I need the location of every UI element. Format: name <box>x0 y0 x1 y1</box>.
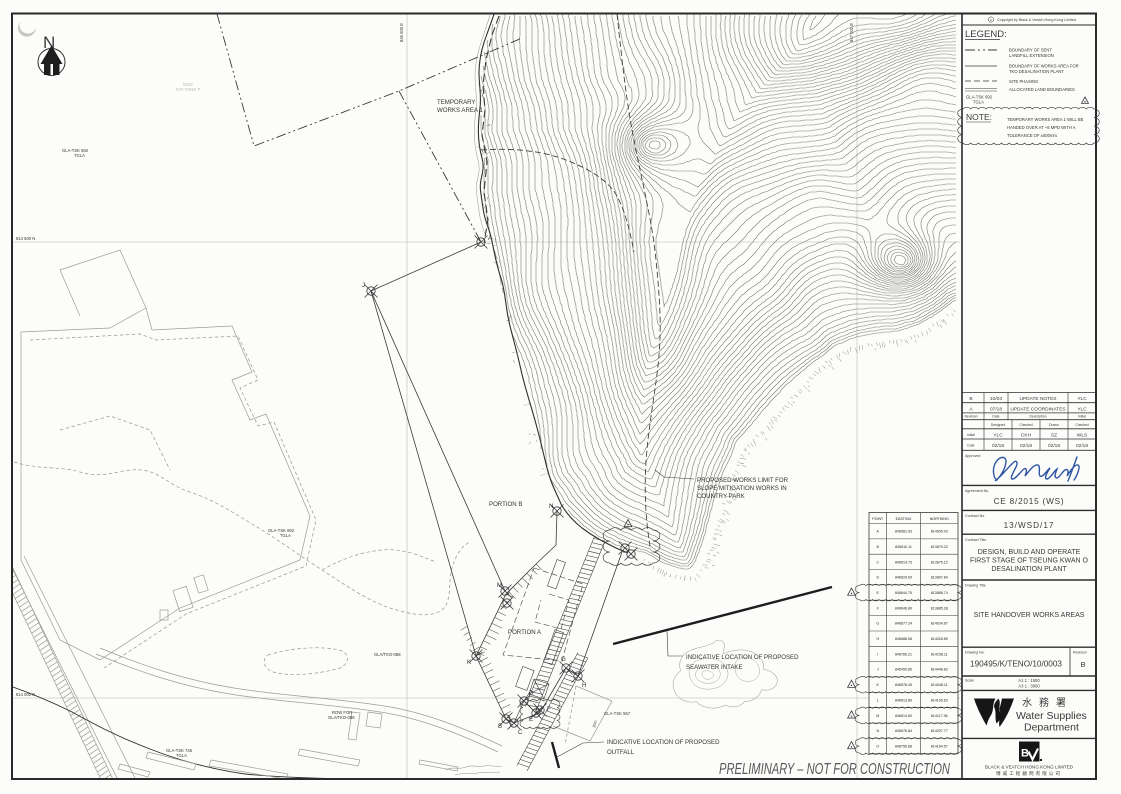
svg-text:02/18: 02/18 <box>1020 443 1032 449</box>
svg-text:J: J <box>362 282 365 289</box>
svg-text:846614.73: 846614.73 <box>895 560 912 564</box>
svg-text:O: O <box>876 745 879 749</box>
svg-text:PORTION A: PORTION A <box>508 629 542 636</box>
svg-text:B: B <box>969 396 972 402</box>
svg-text:CE 8/2015 (WS): CE 8/2015 (WS) <box>994 497 1065 506</box>
svg-text:846614.60: 846614.60 <box>895 714 912 718</box>
svg-text:SLOPE MITIGATION WORKS IN: SLOPE MITIGATION WORKS IN <box>697 485 787 492</box>
svg-text:TOLERANCE OF ±500mm.: TOLERANCE OF ±500mm. <box>1007 133 1058 138</box>
svg-text:F: F <box>547 706 551 713</box>
svg-text:M: M <box>497 582 502 589</box>
svg-text:814164.57: 814164.57 <box>931 745 948 749</box>
svg-text:813885.28: 813885.28 <box>931 606 948 610</box>
svg-text:SZ: SZ <box>1051 432 1057 438</box>
svg-text:TGLA: TGLA <box>74 153 85 158</box>
svg-text:Drawn: Drawn <box>1049 423 1059 427</box>
svg-text:Drawing Title: Drawing Title <box>965 584 986 588</box>
svg-text:H: H <box>582 682 586 689</box>
svg-text:814117.96: 814117.96 <box>931 714 948 718</box>
svg-text:ALLOCATED LAND BOUNDARIES: ALLOCATED LAND BOUNDARIES <box>1009 87 1075 92</box>
svg-text:LEGEND:: LEGEND: <box>965 29 1007 40</box>
svg-text:Initial: Initial <box>1078 415 1086 419</box>
svg-text:NOTE:: NOTE: <box>966 112 992 122</box>
svg-text:02/18: 02/18 <box>1076 443 1088 449</box>
svg-text:BOUNDARY OF WORKS AREA FOR: BOUNDARY OF WORKS AREA FOR <box>1009 64 1079 69</box>
svg-text:GLA/TKO-088: GLA/TKO-088 <box>328 715 355 720</box>
svg-text:TGLA: TGLA <box>280 533 291 538</box>
svg-text:TEMPORARY WORKS AREA 1 WILL BE: TEMPORARY WORKS AREA 1 WILL BE <box>1007 117 1084 122</box>
svg-text:TGLA: TGLA <box>176 753 187 758</box>
svg-text:CKH: CKH <box>1021 432 1032 438</box>
svg-text:846450.85: 846450.85 <box>895 668 912 672</box>
svg-text:Contract Title: Contract Title <box>965 538 986 542</box>
svg-text:813897.84: 813897.84 <box>931 576 948 580</box>
svg-text:PRELIMINARY – NOT FOR CONSTRUC: PRELIMINARY – NOT FOR CONSTRUCTION <box>719 761 951 778</box>
svg-text:846581.93: 846581.93 <box>895 530 912 534</box>
svg-text:PORTION B: PORTION B <box>489 501 522 508</box>
svg-text:814034.67: 814034.67 <box>931 622 948 626</box>
svg-text:水務署: 水務署 <box>1022 696 1073 709</box>
svg-text:OUTFALL: OUTFALL <box>607 749 635 756</box>
svg-text:814207.77: 814207.77 <box>931 729 948 733</box>
svg-text:Checked: Checked <box>1075 423 1088 427</box>
svg-text:E: E <box>529 716 533 723</box>
svg-text:BOUNDARY OF SENT: BOUNDARY OF SENT <box>1009 48 1052 53</box>
svg-text:846610.11: 846610.11 <box>895 545 912 549</box>
svg-text:B: B <box>1080 660 1085 669</box>
svg-text:G: G <box>876 622 879 626</box>
svg-text:HANDED OVER AT +6 MPD WITH A: HANDED OVER AT +6 MPD WITH A <box>1007 125 1076 130</box>
svg-text:G: G <box>561 656 566 663</box>
svg-text:Drawing No.: Drawing No. <box>965 651 985 655</box>
svg-text:846644.75: 846644.75 <box>895 591 912 595</box>
svg-text:Department: Department <box>1024 722 1079 734</box>
svg-text:Date: Date <box>992 415 999 419</box>
svg-text:Designed: Designed <box>991 423 1005 427</box>
svg-text:C: C <box>876 560 879 564</box>
svg-text:N: N <box>876 729 879 733</box>
svg-text:846688.58: 846688.58 <box>895 637 912 641</box>
svg-text:FIRST STAGE OF TSEUNG KWAN O: FIRST STAGE OF TSEUNG KWAN O <box>970 558 1089 565</box>
svg-text:C: C <box>518 729 523 736</box>
svg-text:L: L <box>877 698 879 702</box>
svg-text:PROPOSED WORKS LIMIT FOR: PROPOSED WORKS LIMIT FOR <box>697 477 789 484</box>
svg-text:GLA/TKO-088: GLA/TKO-088 <box>374 652 401 657</box>
svg-text:02/18: 02/18 <box>1048 443 1060 449</box>
svg-text:YLC: YLC <box>1077 406 1087 412</box>
svg-text:GLA-TSK 567: GLA-TSK 567 <box>604 711 631 716</box>
svg-text:02/18: 02/18 <box>992 443 1004 449</box>
svg-text:COUNTRY PARK: COUNTRY PARK <box>697 493 745 500</box>
svg-text:814105.63: 814105.63 <box>931 698 948 702</box>
svg-text:A1 1 : 1500: A1 1 : 1500 <box>1018 678 1040 683</box>
svg-text:10/03: 10/03 <box>990 396 1002 402</box>
svg-text:SEAWATER INTAKE: SEAWATER INTAKE <box>686 664 743 671</box>
svg-text:博威工程顧問有限公司: 博威工程顧問有限公司 <box>996 770 1062 777</box>
svg-text:YLC: YLC <box>1077 396 1087 402</box>
svg-text:13/WSD/17: 13/WSD/17 <box>1004 521 1055 530</box>
svg-text:Water Supplies: Water Supplies <box>1016 710 1087 722</box>
svg-text:814448.83: 814448.83 <box>931 668 948 672</box>
svg-text:EASTING: EASTING <box>896 517 912 521</box>
svg-text:B: B <box>498 723 502 730</box>
svg-text:846 500 E: 846 500 E <box>399 23 404 42</box>
svg-text:Revision: Revision <box>1073 651 1087 655</box>
svg-text:846646.80: 846646.80 <box>895 606 912 610</box>
svg-text:TKO DESALINATION PLANT: TKO DESALINATION PLANT <box>1009 69 1064 74</box>
svg-text:Scale: Scale <box>965 679 974 683</box>
svg-text:LANDFILL EXTENSION: LANDFILL EXTENSION <box>1009 53 1054 58</box>
svg-text:BLACK & VEATCH HONG KONG LIMIT: BLACK & VEATCH HONG KONG LIMITED <box>985 765 1074 770</box>
svg-text:N: N <box>549 503 553 510</box>
svg-text:Initial: Initial <box>967 433 975 437</box>
svg-text:WORKS AREA 1: WORKS AREA 1 <box>437 107 483 114</box>
svg-text:A3 1 : 3000: A3 1 : 3000 <box>1018 684 1040 689</box>
svg-text:J: J <box>877 668 879 672</box>
svg-text:846613.89: 846613.89 <box>895 698 912 702</box>
svg-text:846766.21: 846766.21 <box>895 652 912 656</box>
svg-text:Approved: Approved <box>965 454 980 458</box>
svg-text:TEMPORARY: TEMPORARY <box>437 99 476 106</box>
svg-text:UPDATE COORDINATES: UPDATE COORDINATES <box>1010 406 1065 412</box>
svg-text:NORTHING: NORTHING <box>930 517 949 521</box>
svg-text:INDICATIVE LOCATION OF PROPOSE: INDICATIVE LOCATION OF PROPOSED <box>607 739 720 746</box>
svg-text:YLC: YLC <box>993 432 1003 438</box>
svg-text:814505.03: 814505.03 <box>931 530 948 534</box>
svg-text:Description: Description <box>1030 415 1047 419</box>
svg-text:M: M <box>876 714 879 718</box>
svg-text:846677.24: 846677.24 <box>895 622 912 626</box>
svg-text:Revision: Revision <box>964 415 977 419</box>
svg-text:I: I <box>877 652 878 656</box>
svg-text:814028.89: 814028.89 <box>931 637 948 641</box>
svg-text:190495/K/TENO/10/0003: 190495/K/TENO/10/0003 <box>970 660 1062 669</box>
svg-text:813879.23: 813879.23 <box>931 545 948 549</box>
svg-text:846676.84: 846676.84 <box>895 729 912 733</box>
svg-text:c: c <box>990 18 992 22</box>
svg-text:Contract No.: Contract No. <box>965 514 985 518</box>
svg-text:UPDATE NOTES: UPDATE NOTES <box>1020 396 1057 402</box>
svg-text:WLS: WLS <box>1077 432 1087 438</box>
svg-text:846629.09: 846629.09 <box>895 576 912 580</box>
svg-text:07/18: 07/18 <box>990 406 1002 412</box>
svg-text:SITE PHASING: SITE PHASING <box>1009 79 1038 84</box>
svg-text:FAT TONG P: FAT TONG P <box>176 87 201 92</box>
svg-text:Date: Date <box>967 444 974 448</box>
svg-text:814048.11: 814048.11 <box>931 683 948 687</box>
svg-text:DESIGN, BUILD AND OPERATE: DESIGN, BUILD AND OPERATE <box>978 549 1081 556</box>
svg-text:H: H <box>876 637 879 641</box>
svg-text:POINT: POINT <box>872 517 884 521</box>
svg-text:D: D <box>876 576 879 580</box>
svg-text:TGLA: TGLA <box>973 100 984 105</box>
svg-text:B: B <box>1021 748 1029 760</box>
svg-text:814158.11: 814158.11 <box>931 652 948 656</box>
svg-text:813875.12: 813875.12 <box>931 560 948 564</box>
svg-text:Copyright by Black & Veatch Ho: Copyright by Black & Veatch Hong Kong Li… <box>997 18 1076 22</box>
svg-text:Checked: Checked <box>1019 423 1032 427</box>
svg-text:DESALINATION PLANT: DESALINATION PLANT <box>991 566 1067 573</box>
svg-text:814 500 N: 814 500 N <box>16 236 35 241</box>
svg-text:846578.45: 846578.45 <box>895 683 912 687</box>
svg-text:D: D <box>529 690 534 697</box>
svg-text:813888.74: 813888.74 <box>931 591 948 595</box>
svg-text:SITE HANDOVER WORKS AREAS: SITE HANDOVER WORKS AREAS <box>974 612 1085 619</box>
svg-text:846756.88: 846756.88 <box>895 745 912 749</box>
svg-text:Agreement No.: Agreement No. <box>965 489 989 493</box>
